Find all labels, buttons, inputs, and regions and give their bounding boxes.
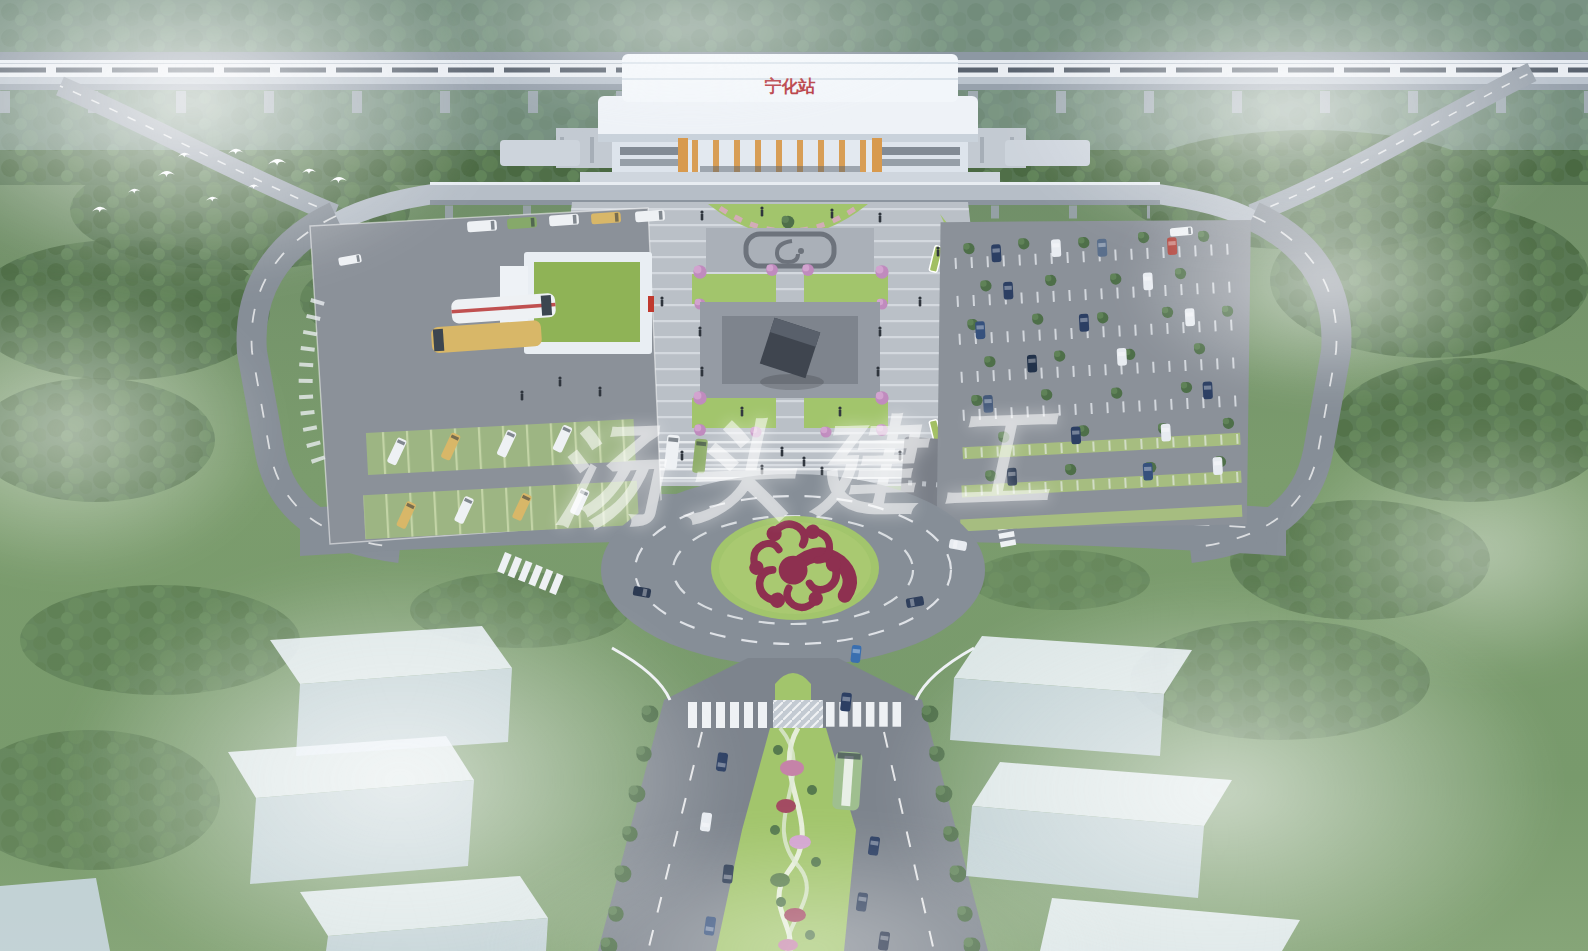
bus-terminal bbox=[306, 208, 708, 544]
roundabout bbox=[601, 474, 985, 666]
car-parking-lot bbox=[921, 206, 1267, 541]
station-sign: 宁化站 bbox=[765, 76, 816, 96]
scene-canvas: 宁化站 bbox=[0, 0, 1588, 951]
cube-sculpture bbox=[700, 302, 880, 398]
city-bus bbox=[832, 751, 863, 811]
aerial-rendering: 宁化站 bbox=[0, 0, 1588, 951]
